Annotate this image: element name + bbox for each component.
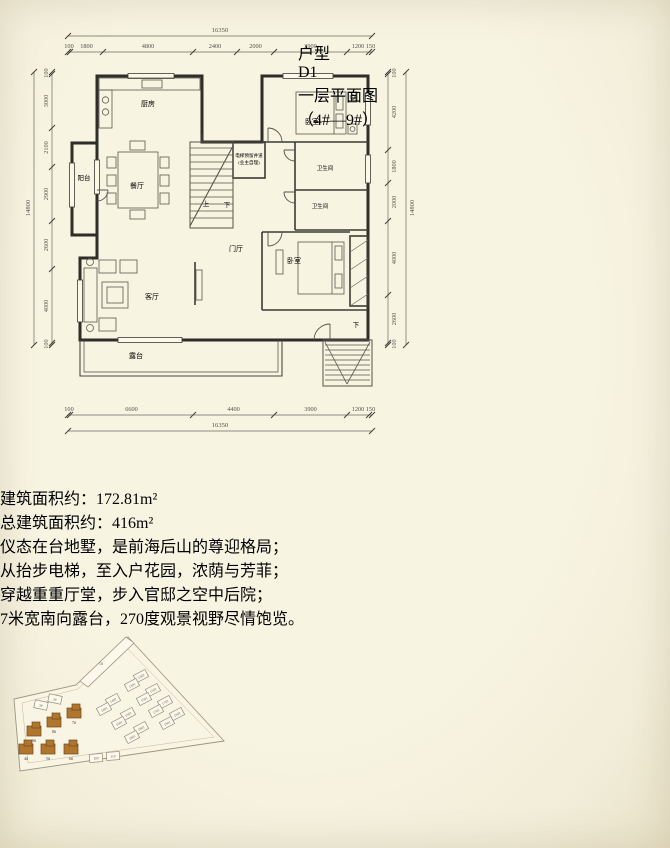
svg-text:14800: 14800	[25, 199, 32, 216]
svg-text:100: 100	[64, 406, 73, 413]
header-band: 户型 D1 一层平面图 （4#—9#）	[298, 40, 580, 102]
elevator-note-line1: 电梯预留井道	[235, 152, 263, 159]
outdoor-stairs-down-label: 下	[353, 321, 360, 329]
room-bath1: 卫生间	[317, 164, 334, 172]
stairs-up-label: 上	[203, 199, 210, 208]
svg-text:100: 100	[43, 68, 50, 77]
room-bedroom2: 卧室	[287, 256, 301, 265]
page-subtitle: （4#—9#）	[298, 106, 580, 130]
list-item: 穿越重重厅堂，步入官邸之空中后院；	[0, 581, 670, 605]
feature-text: 7米宽南向露台，270度观景视野尽情饱览。	[0, 611, 304, 628]
svg-text:150: 150	[366, 406, 375, 413]
svg-text:6#: 6#	[69, 756, 73, 761]
site-unit: 11#	[106, 752, 120, 761]
stairs	[190, 142, 233, 228]
room-bath2: 卫生间	[312, 202, 329, 210]
list-item: 7米宽南向露台，270度观景视野尽情饱览。	[0, 605, 670, 629]
svg-text:4#: 4#	[24, 756, 28, 761]
outdoor-stairs	[323, 340, 372, 386]
svg-text:14800: 14800	[409, 199, 416, 216]
svg-text:1800: 1800	[80, 43, 93, 50]
brochure-page: 户型 D1 一层平面图 （4#—9#）	[0, 0, 670, 848]
svg-text:5#: 5#	[46, 756, 50, 761]
svg-text:16350: 16350	[212, 422, 229, 429]
svg-text:2600: 2600	[43, 239, 50, 252]
svg-text:4800: 4800	[142, 43, 155, 50]
unit-category-label: 户型	[298, 40, 580, 64]
stairs-down-label: 下	[224, 201, 231, 209]
svg-text:11#: 11#	[110, 754, 116, 758]
room-living: 客厅	[145, 292, 159, 301]
feature-text: 仪态在台地墅，是前海后山的尊迎格局；	[0, 539, 288, 556]
room-balcony: 阳台	[78, 173, 91, 182]
feature-text: 穿越重重厅堂，步入官邸之空中后院；	[0, 587, 272, 604]
svg-text:2000: 2000	[391, 196, 398, 209]
svg-text:3900: 3900	[304, 406, 317, 413]
svg-text:100: 100	[43, 339, 50, 348]
svg-text:2000: 2000	[249, 43, 262, 50]
unit-code: D1	[298, 64, 580, 82]
svg-text:10#: 10#	[93, 756, 99, 760]
wardrobe-hatch	[350, 240, 368, 306]
room-kitchen: 厨房	[141, 99, 155, 108]
svg-text:8#: 8#	[52, 729, 56, 734]
svg-text:6600: 6600	[125, 406, 138, 413]
svg-text:3000: 3000	[43, 95, 50, 108]
site-unit: 10#	[89, 754, 103, 763]
site-plan: 1# 2#3#10#11#130213011502150114021401170…	[0, 629, 255, 801]
svg-text:4000: 4000	[43, 300, 50, 313]
list-item: 仪态在台地墅，是前海后山的尊迎格局；	[0, 533, 670, 557]
svg-text:9#: 9#	[32, 738, 36, 743]
svg-text:1800: 1800	[391, 160, 398, 173]
feature-list: 仪态在台地墅，是前海后山的尊迎格局； 从抬步电梯，至入户花园，浓荫与芳菲； 穿越…	[0, 533, 670, 629]
svg-text:100: 100	[64, 43, 73, 50]
svg-text:4000: 4000	[391, 252, 398, 265]
svg-text:4400: 4400	[227, 406, 240, 413]
elevator-note-line2: (业主自理)	[238, 159, 260, 166]
total-area-value: 416m²	[112, 515, 153, 532]
floor-area-label: 建筑面积约：	[0, 491, 96, 508]
room-dining: 餐厅	[130, 181, 144, 190]
feature-text: 从抬步电梯，至入户花园，浓荫与芳菲；	[0, 563, 288, 580]
total-area-label: 总建筑面积约：	[0, 515, 112, 532]
svg-text:2600: 2600	[391, 313, 398, 326]
svg-text:2100: 2100	[43, 141, 50, 154]
svg-text:16350: 16350	[212, 27, 229, 34]
svg-text:1200: 1200	[352, 406, 365, 413]
list-item: 从抬步电梯，至入户花园，浓荫与芳菲；	[0, 557, 670, 581]
terrace-railing	[80, 340, 282, 376]
page-title: 一层平面图	[298, 82, 580, 106]
svg-text:2900: 2900	[43, 188, 50, 201]
room-terrace: 露台	[129, 351, 143, 360]
svg-text:7#: 7#	[72, 720, 76, 725]
area-summary: 建筑面积约：172.81m² 总建筑面积约：416m²	[0, 485, 670, 533]
room-foyer: 门厅	[229, 244, 243, 253]
svg-text:100: 100	[391, 339, 398, 348]
floor-area-value: 172.81m²	[96, 491, 157, 508]
svg-text:2400: 2400	[209, 43, 222, 50]
